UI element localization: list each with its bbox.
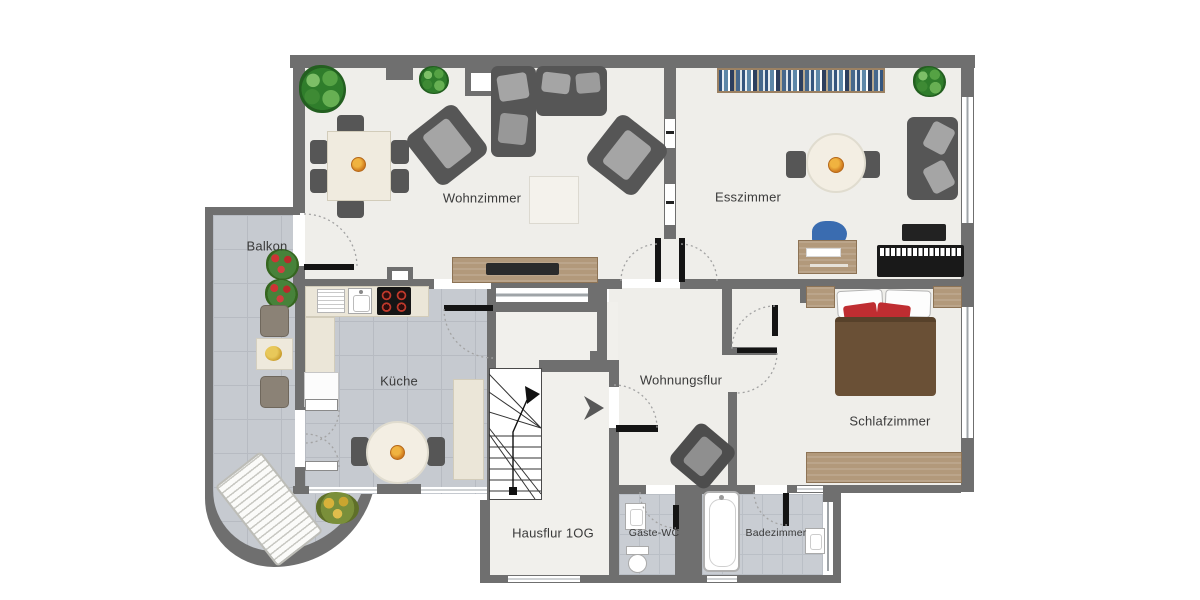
wall xyxy=(480,500,490,583)
desk xyxy=(798,240,857,274)
piano xyxy=(877,245,964,277)
window xyxy=(508,576,580,582)
dining-chair xyxy=(337,199,364,218)
door-leaf xyxy=(772,305,778,336)
wall xyxy=(728,392,737,485)
wall xyxy=(290,55,975,68)
wall xyxy=(539,360,619,372)
wall xyxy=(609,428,619,583)
nightstand xyxy=(806,286,835,308)
wall-pier xyxy=(377,484,421,494)
dining-chair xyxy=(391,169,409,193)
nightstand xyxy=(933,286,962,308)
wall xyxy=(823,486,833,502)
glazed-door-leaf xyxy=(305,461,338,471)
dining-chair xyxy=(310,140,328,164)
door-leaf xyxy=(673,505,679,529)
door-leaf xyxy=(444,305,493,311)
kitchen-counter xyxy=(305,317,335,373)
stove xyxy=(377,287,411,315)
double-door-leaf xyxy=(655,238,661,282)
plant xyxy=(419,66,449,94)
fruit-bowl xyxy=(828,157,844,173)
drainboard xyxy=(317,289,345,313)
bathtub xyxy=(703,491,740,572)
bookshelf xyxy=(717,68,885,93)
plant xyxy=(299,65,346,113)
room-label-hausflur: Hausflur 1OG xyxy=(512,526,594,541)
rug xyxy=(529,176,579,224)
door-leaf xyxy=(737,348,777,353)
bedroom-sideboard xyxy=(806,452,962,483)
tall-cabinet xyxy=(453,379,484,480)
glass-pane xyxy=(665,184,675,225)
kitchen-sink xyxy=(348,288,372,314)
chimney-inset xyxy=(392,271,408,280)
bed-blanket xyxy=(835,317,936,396)
chimney-pillar xyxy=(386,68,413,80)
flower-box xyxy=(266,249,299,280)
glass-pane-tick xyxy=(666,131,674,134)
toilet-bowl xyxy=(628,554,647,573)
wash-basin xyxy=(625,503,646,530)
room-label-badezimmer: Badezimmer xyxy=(746,527,807,539)
wall xyxy=(619,485,646,494)
staircase xyxy=(489,368,542,500)
door-opening xyxy=(609,387,619,428)
window xyxy=(962,97,973,223)
tv-panel xyxy=(902,224,946,241)
desk-drawer-line xyxy=(810,264,848,267)
floor-plan: Wohnzimmer Esszimmer Balkon Küche Wohnun… xyxy=(0,0,1200,600)
desk-paper xyxy=(806,248,841,257)
entrance-door-leaf xyxy=(616,425,658,432)
bowl xyxy=(265,346,282,361)
double-door-leaf xyxy=(679,238,685,282)
balcony-chair xyxy=(260,376,289,408)
tv xyxy=(486,263,559,275)
loveseat-sofa xyxy=(907,117,958,200)
door-opening xyxy=(295,410,305,467)
room-label-wohnzimmer: Wohnzimmer xyxy=(443,191,521,206)
wall xyxy=(590,351,602,360)
corner-sofa-chaise xyxy=(491,66,536,157)
wall xyxy=(295,467,305,494)
room-label-kueche: Küche xyxy=(380,374,418,389)
door-opening xyxy=(646,485,675,494)
window xyxy=(707,576,737,582)
glass-front xyxy=(421,487,487,493)
door-leaf xyxy=(304,264,354,270)
fruit-bowl xyxy=(351,157,366,172)
dining-chair xyxy=(310,169,328,193)
wall xyxy=(833,486,841,583)
glazed-door-leaf xyxy=(305,399,338,411)
balcony-chair xyxy=(260,305,289,337)
window xyxy=(496,288,588,302)
room-label-wohnungsflur: Wohnungsflur xyxy=(640,373,722,388)
window xyxy=(962,307,973,438)
room-label-balkon: Balkon xyxy=(247,239,288,254)
glass-pane-tick xyxy=(666,201,674,204)
room-label-schlafzimmer: Schlafzimmer xyxy=(849,414,930,429)
fruit-bowl xyxy=(390,445,405,460)
balcony-top-wall xyxy=(205,207,300,215)
wall xyxy=(722,288,732,355)
dining-chair xyxy=(786,151,806,178)
wall xyxy=(609,362,619,387)
entrance-arrow xyxy=(582,394,606,422)
room-label-esszimmer: Esszimmer xyxy=(715,190,781,205)
wash-basin xyxy=(805,528,825,554)
room-label-gaeste-wc: Gäste-WC xyxy=(629,527,680,539)
corner-sofa xyxy=(536,66,607,116)
door-leaf xyxy=(783,493,789,526)
kitchen-chair xyxy=(427,437,445,466)
plant xyxy=(913,66,946,97)
plant xyxy=(316,492,359,524)
